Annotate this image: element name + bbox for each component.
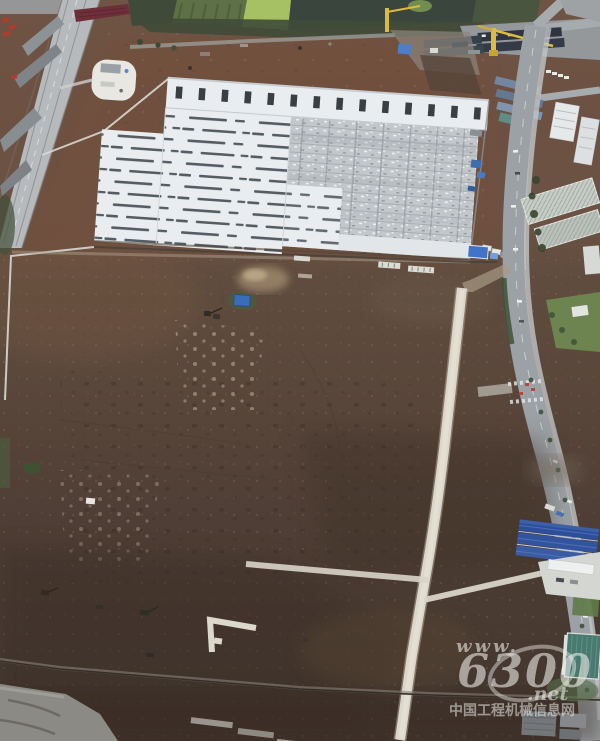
aerial-photo: www. 6300 .net 中国工程机械信息网 [0,0,600,741]
entrance-stub [478,388,512,392]
watermark-site-name: 中国工程机械信息网 [449,700,575,720]
white-tent [86,498,95,505]
bush [23,462,41,474]
gate-pad [91,59,138,102]
watermark-logo: 6300 [457,644,593,698]
aerial-photo-canvas [0,0,600,741]
blue-roof-hut [398,43,412,54]
grass-strip [0,438,10,488]
